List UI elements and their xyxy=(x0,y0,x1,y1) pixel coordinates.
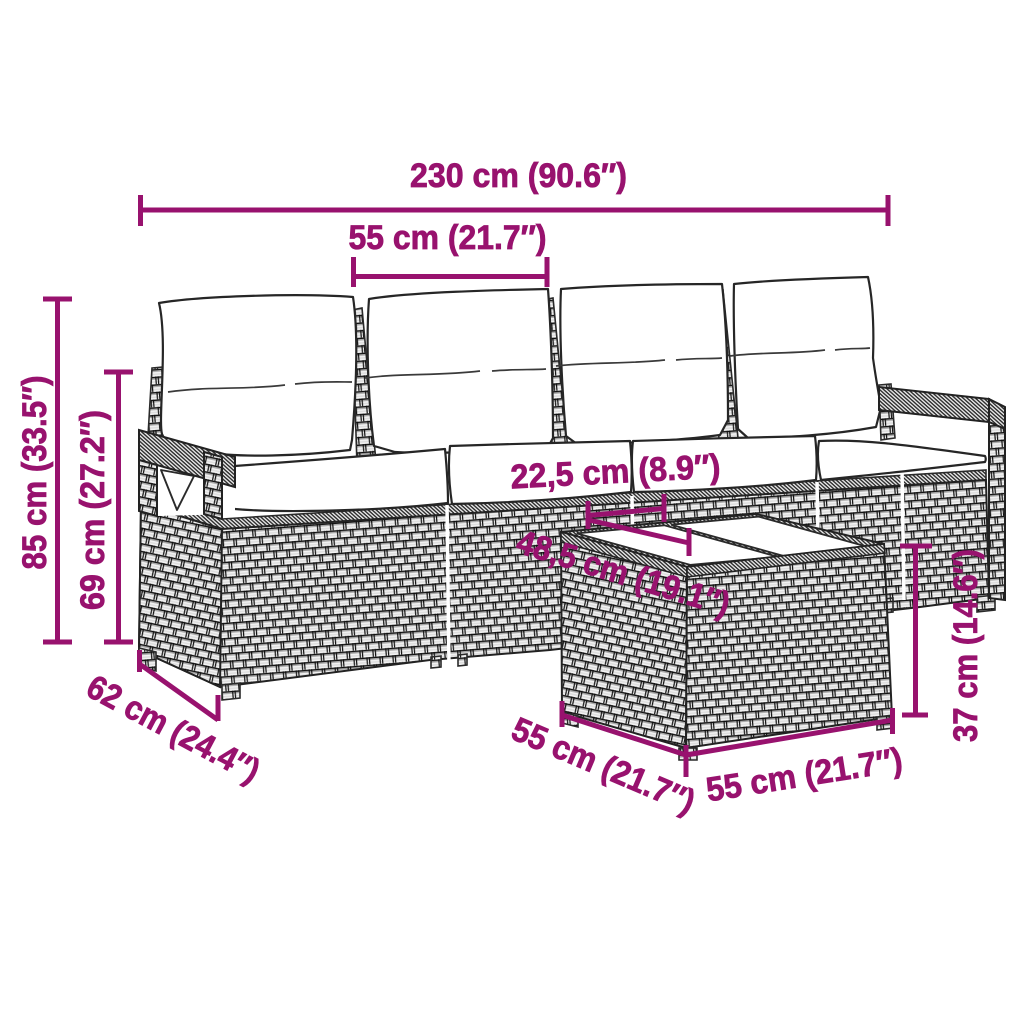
svg-text:85 cm (33.5″): 85 cm (33.5″) xyxy=(16,376,54,570)
svg-text:230 cm (90.6″): 230 cm (90.6″) xyxy=(410,157,627,195)
svg-text:69 cm (27.2″): 69 cm (27.2″) xyxy=(74,410,112,610)
svg-text:37 cm (14.6″): 37 cm (14.6″) xyxy=(947,549,985,742)
svg-text:55 cm (21.7″): 55 cm (21.7″) xyxy=(349,219,547,257)
